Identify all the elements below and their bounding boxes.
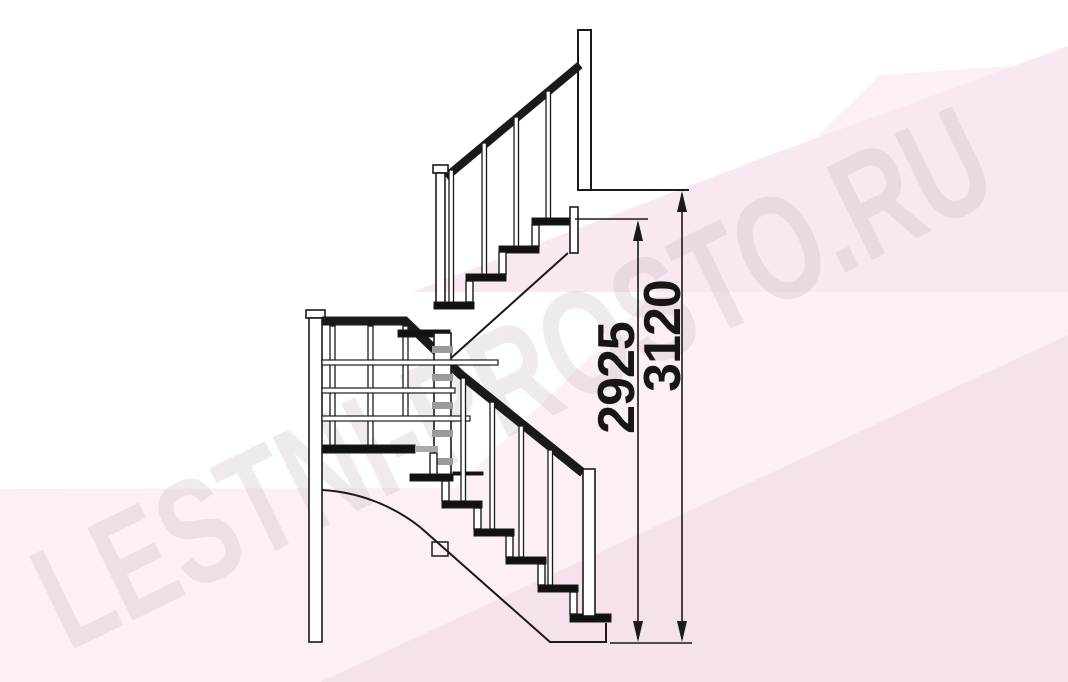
upper-newel-cap xyxy=(433,165,448,173)
tread xyxy=(442,501,482,508)
bottom-newel-post xyxy=(583,469,595,616)
upper-side-post xyxy=(570,207,578,253)
tread xyxy=(466,274,506,281)
strut xyxy=(570,592,577,614)
staircase-elevation-svg: LESTNI-PROSTO.RU xyxy=(0,0,1068,682)
strut xyxy=(506,536,513,557)
strut xyxy=(474,508,481,529)
drawing-canvas: LESTNI-PROSTO.RU xyxy=(0,0,1068,682)
baluster xyxy=(548,450,553,585)
baluster xyxy=(461,378,466,501)
baluster xyxy=(449,170,454,304)
plate xyxy=(432,402,453,409)
strut xyxy=(466,281,473,302)
strut xyxy=(532,225,539,246)
baluster xyxy=(514,117,519,247)
baluster xyxy=(519,426,524,557)
winder-tread-edge xyxy=(322,388,455,393)
strut xyxy=(430,453,437,475)
winder-newel-post xyxy=(309,318,322,642)
winder-tread-edge xyxy=(322,416,470,421)
tread xyxy=(434,302,474,309)
tread xyxy=(532,218,572,225)
winder-thick-tread-ext xyxy=(415,446,438,452)
dim-label-3120: 3120 xyxy=(634,280,692,392)
winder-tread-edge xyxy=(322,360,498,365)
upper-newel-post xyxy=(436,173,445,304)
strut xyxy=(538,564,545,585)
plate xyxy=(432,374,453,381)
tread xyxy=(538,585,578,592)
baluster xyxy=(490,402,495,529)
tread xyxy=(506,557,546,564)
baluster xyxy=(330,326,335,446)
strut xyxy=(442,481,449,501)
plate xyxy=(432,430,453,437)
tread xyxy=(410,474,453,481)
tread xyxy=(474,529,514,536)
winder-thick-tread xyxy=(322,445,415,453)
plate xyxy=(432,346,453,353)
top-newel-post xyxy=(578,30,591,190)
baluster xyxy=(368,326,373,446)
baluster xyxy=(482,143,487,276)
tread-back-edge xyxy=(453,472,483,475)
strut xyxy=(499,252,506,274)
baluster xyxy=(546,91,551,219)
baluster xyxy=(403,326,408,420)
